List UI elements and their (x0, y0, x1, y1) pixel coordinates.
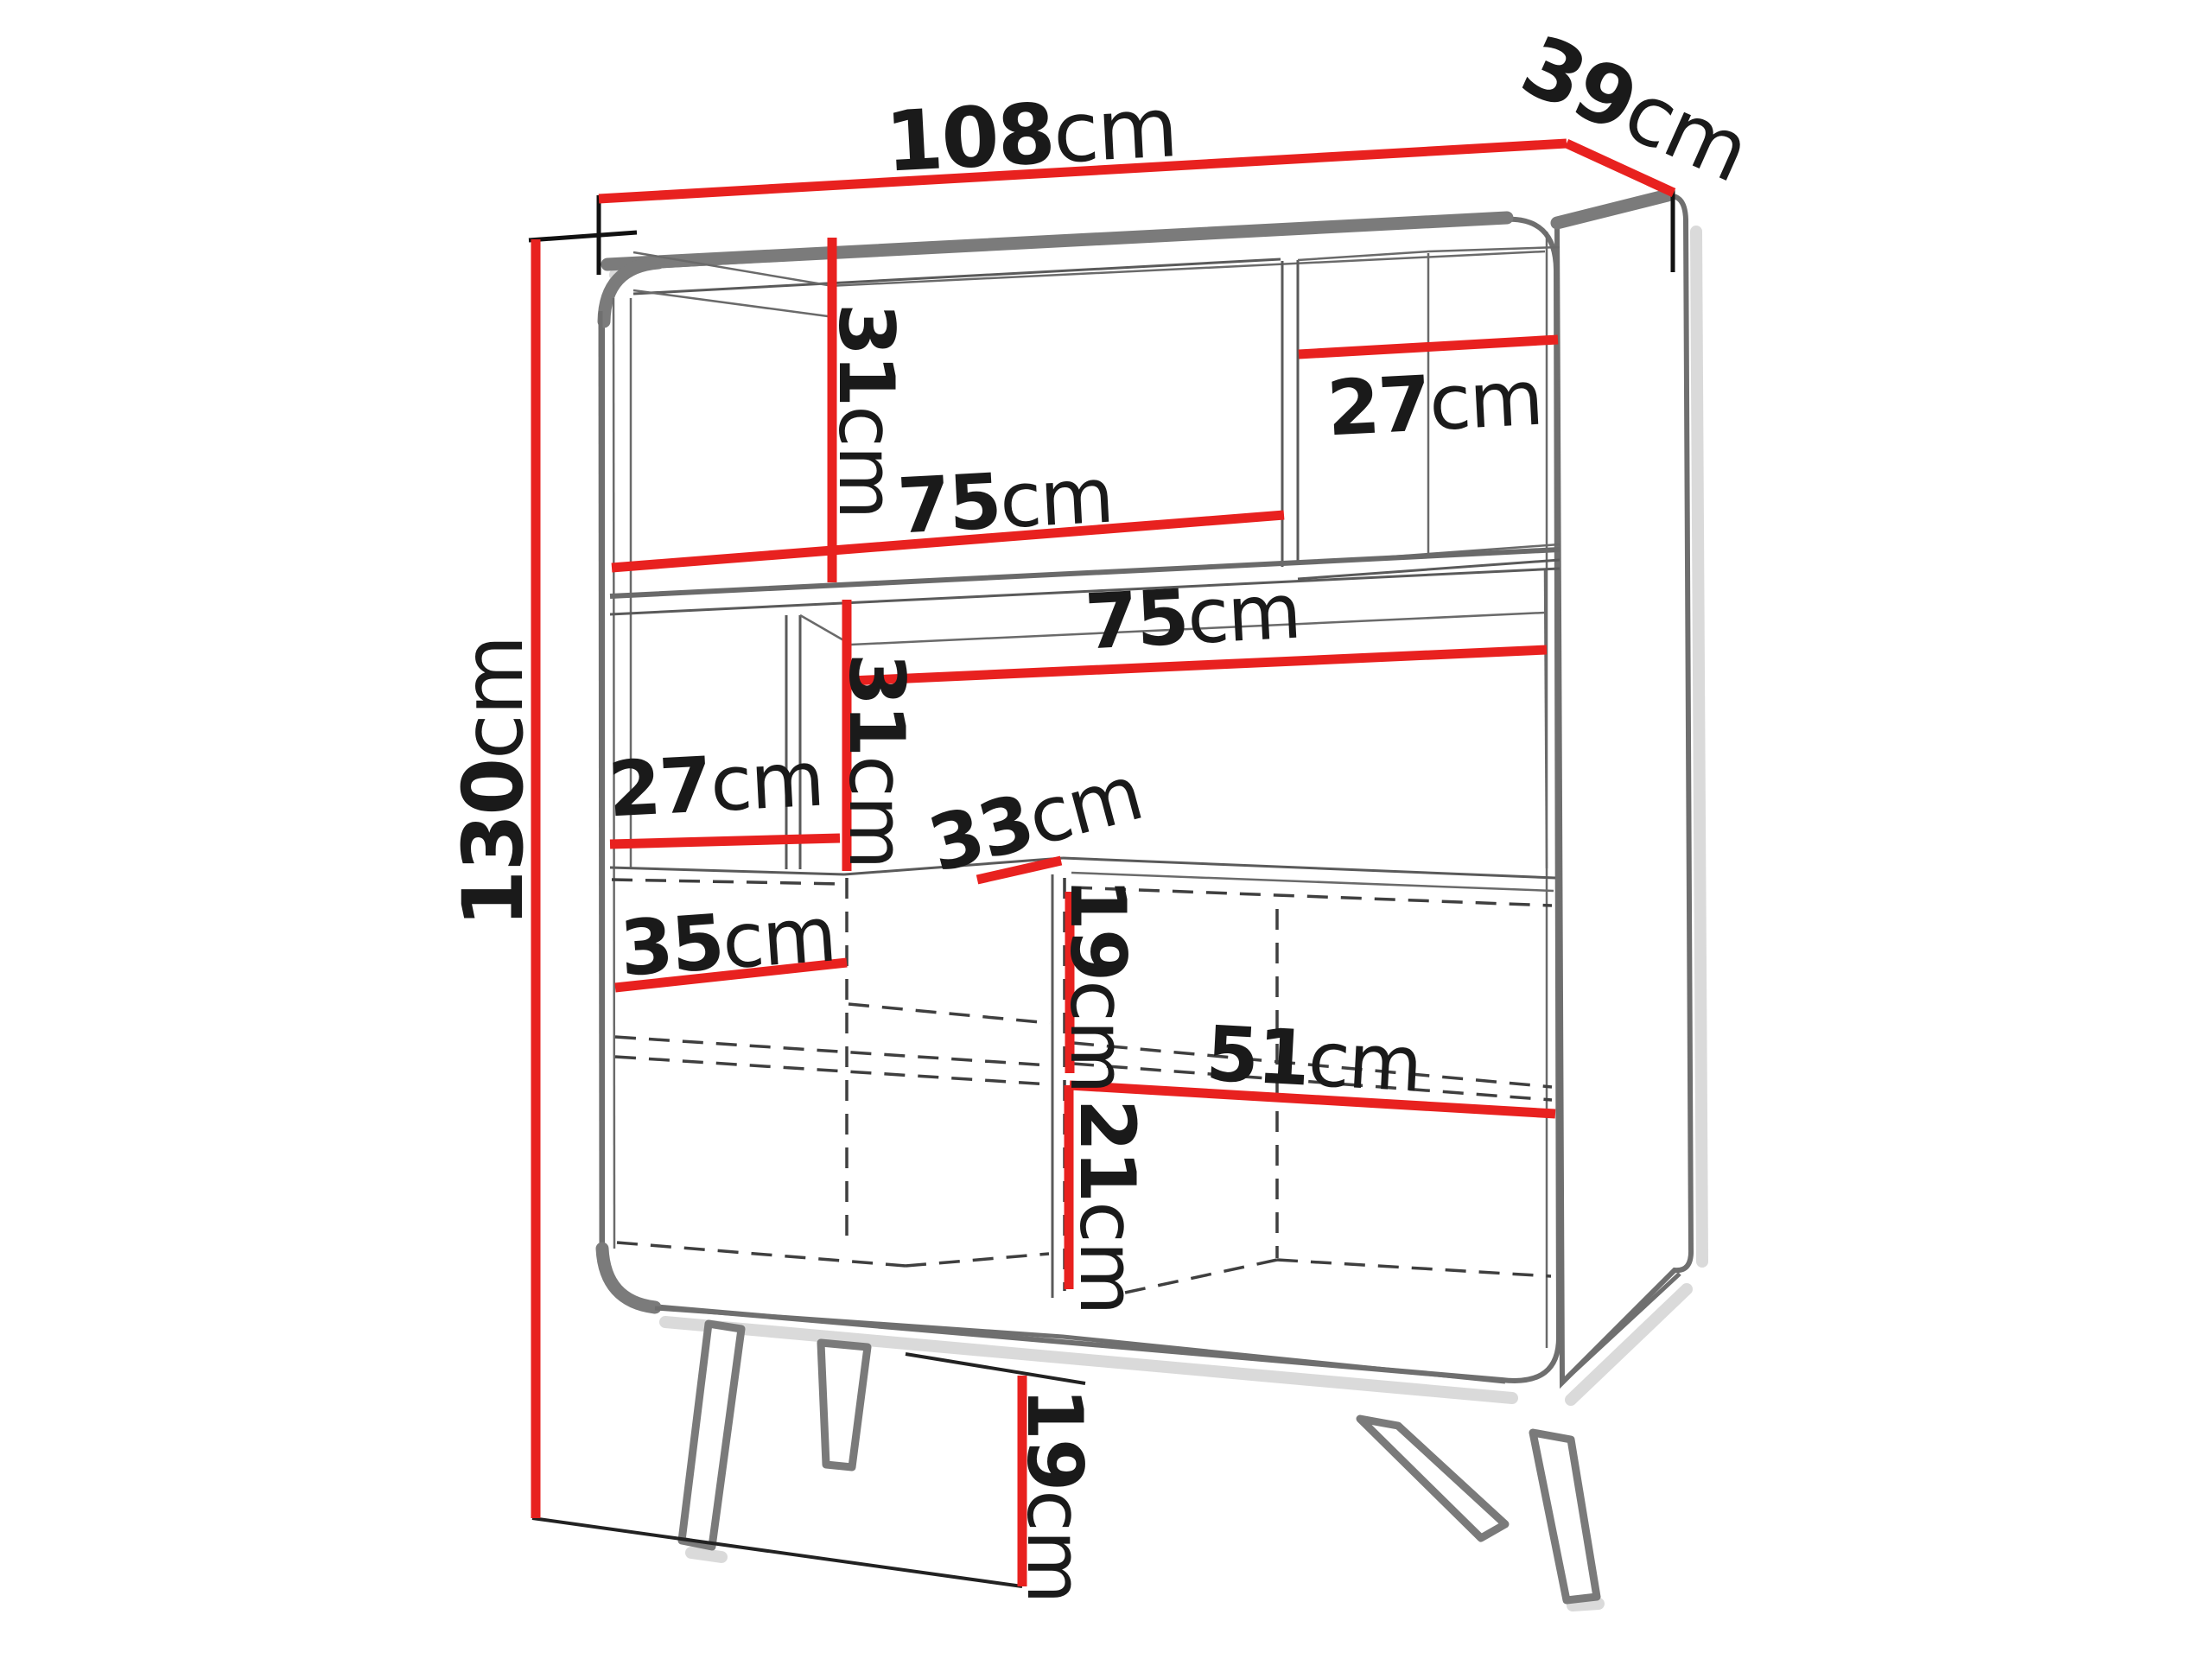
dim-overall-width-label: 108cm (883, 79, 1179, 190)
dim-middle-height-label: 31cm (832, 653, 921, 868)
dim-top-right-width-label: 27cm (1325, 353, 1544, 454)
dim-middle-left-width-label: 27cm (606, 734, 825, 835)
dim-leg-height-label: 19cm (1010, 1388, 1099, 1603)
dim-lower-right-lower-height-label: 21cm (1063, 1099, 1152, 1314)
diagram-canvas: 108cm 39cm 130cm 31cm 75cm 27cm 75cm 27c… (0, 0, 2212, 1659)
dim-lower-left-width-label: 35cm (617, 889, 837, 993)
dim-lower-right-upper-height-label: 19cm (1053, 878, 1142, 1093)
cabinet-right-side-panel (1557, 196, 1691, 1382)
cabinet-left-edge (601, 311, 601, 1253)
dim-middle-width-label: 75cm (1083, 567, 1302, 667)
leg-back-left (821, 1343, 868, 1467)
leg-front-right (1533, 1433, 1597, 1600)
leg-back-right (1360, 1419, 1505, 1538)
leg-front-left (682, 1324, 741, 1547)
dim-middle-left-width-line (610, 838, 840, 844)
dim-lower-right-width-label: 51cm (1204, 1009, 1423, 1109)
dim-overall-height-label: 130cm (445, 637, 542, 928)
dim-top-left-width-label: 75cm (895, 451, 1115, 551)
furniture-dimension-drawing: 108cm 39cm 130cm 31cm 75cm 27cm 75cm 27c… (0, 0, 2212, 1659)
